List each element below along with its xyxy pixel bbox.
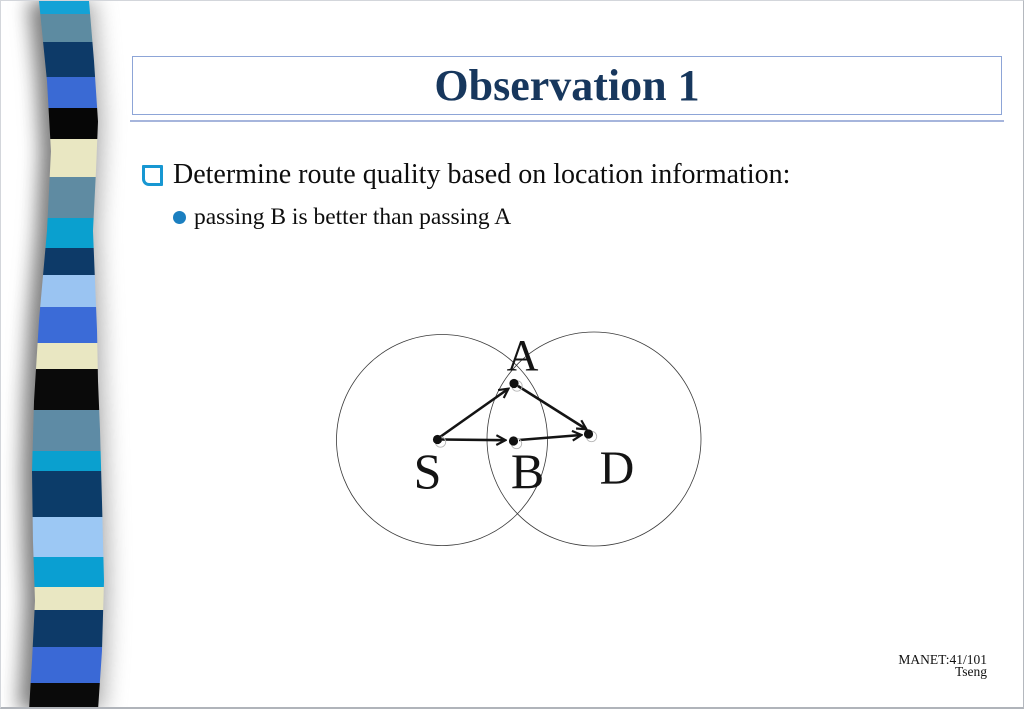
- sub-bullet-text: passing B is better than passing A: [194, 203, 511, 232]
- node-label-D: D: [600, 442, 635, 495]
- square-bullet-icon: [142, 165, 163, 186]
- title-box: Observation 1: [132, 56, 1002, 115]
- slide-root: Observation 1 Determine route quality ba…: [0, 0, 1024, 709]
- decorative-ribbon: [29, 1, 104, 709]
- ribbon-shadow: [1, 1, 131, 709]
- network-diagram: A S B D: [321, 319, 721, 559]
- edge-B-D: [519, 435, 581, 440]
- edge-S-B: [442, 440, 505, 441]
- node-dot-A: [509, 379, 518, 388]
- bullet-text: Determine route quality based on locatio…: [173, 158, 790, 192]
- bullet-item: Determine route quality based on locatio…: [142, 158, 982, 192]
- circle-bullet-icon: [173, 211, 186, 224]
- node-label-S: S: [414, 443, 442, 499]
- edge-A-D: [518, 386, 586, 429]
- page-title: Observation 1: [434, 64, 699, 108]
- edge-S-A: [440, 389, 508, 437]
- node-label-B: B: [511, 443, 544, 499]
- title-underline-rule: [130, 120, 1004, 122]
- node-dot-D: [584, 429, 593, 438]
- footer-author: Tseng: [898, 666, 987, 678]
- node-label-A: A: [507, 331, 539, 380]
- slide-footer: MANET:41/101 Tseng: [898, 654, 987, 677]
- sub-bullet-item: passing B is better than passing A: [173, 203, 973, 232]
